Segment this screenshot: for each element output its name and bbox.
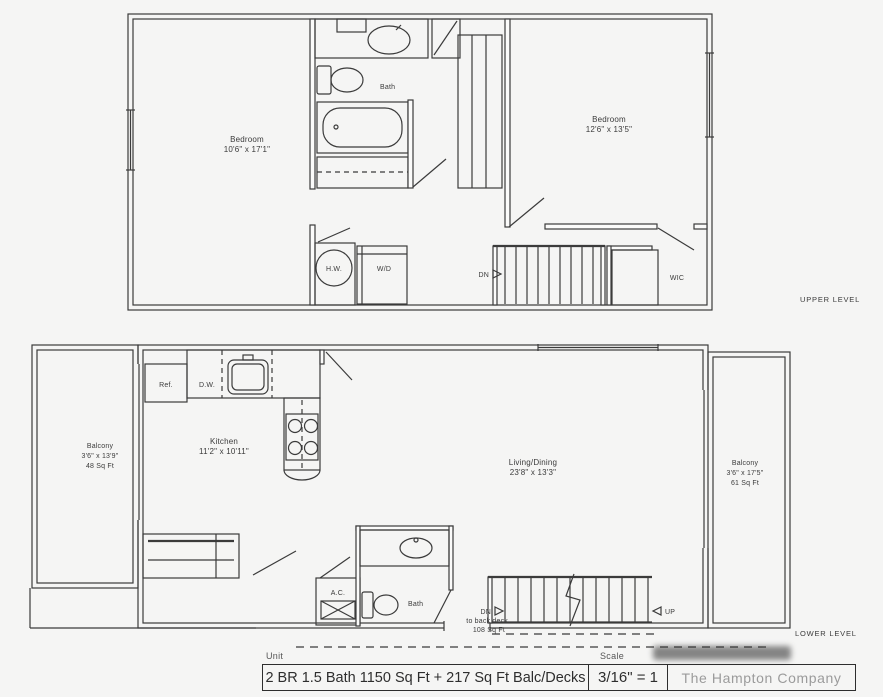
wd-label: W/D bbox=[377, 266, 391, 273]
bath-label: Bath bbox=[380, 84, 395, 91]
kitchen: Ref. D.W. Kitchen 11'2" x 10'11" bbox=[145, 350, 352, 480]
toilet-icon bbox=[331, 68, 363, 92]
living-name: Living/Dining bbox=[509, 458, 557, 467]
balcony-left-name: Balcony bbox=[87, 443, 114, 450]
bath-door-swing bbox=[434, 590, 451, 623]
balcony-right: Balcony 3'6" x 17'5" 61 Sq Ft bbox=[702, 352, 790, 628]
lower-stairs: DN to back deck 108 Sq Ft UP bbox=[296, 574, 772, 647]
bath-vanity-counter bbox=[315, 19, 428, 58]
kitchen-dims: 11'2" x 10'11" bbox=[199, 447, 249, 456]
balcony-right-area: 61 Sq Ft bbox=[731, 480, 759, 487]
dw-label: D.W. bbox=[199, 382, 215, 389]
toilet-tank-icon bbox=[317, 66, 331, 94]
kitchen-door-swing bbox=[326, 352, 352, 380]
lower-bath: Bath bbox=[356, 526, 453, 626]
floor-plan-drawing: Bedroom 10'6" x 17'1" Bath bbox=[0, 0, 883, 697]
dn-note-1: to back deck bbox=[466, 618, 508, 625]
unit-summary: 2 BR 1.5 Bath 1150 Sq Ft + 217 Sq Ft Bal… bbox=[262, 664, 589, 691]
entry-door-swing bbox=[320, 557, 350, 578]
watermark-smudge bbox=[653, 646, 791, 660]
stair-break-line bbox=[566, 574, 580, 626]
wic-label: WIC bbox=[670, 275, 684, 282]
bedroom-2: Bedroom 12'6" x 13'5" bbox=[505, 19, 707, 229]
bath-vanity bbox=[360, 530, 449, 566]
counter-end-cap bbox=[284, 470, 320, 480]
up-label: UP bbox=[665, 609, 675, 616]
scale-value: 3/16" = 1 bbox=[589, 664, 668, 691]
upper-level-caption: UPPER LEVEL bbox=[800, 295, 860, 304]
tub-icon bbox=[317, 102, 408, 153]
bedroom-1-dims: 10'6" x 17'1" bbox=[224, 145, 270, 154]
toilet-tank-icon bbox=[362, 592, 373, 618]
lower-level-caption: LOWER LEVEL bbox=[795, 629, 857, 638]
upper-window-left bbox=[126, 110, 135, 170]
company-name: The Hampton Company bbox=[668, 664, 856, 691]
balcony-left-area: 48 Sq Ft bbox=[86, 463, 114, 470]
ac-closet: A.C. bbox=[316, 578, 360, 625]
hw-label: H.W. bbox=[326, 266, 342, 273]
unit-label: Unit bbox=[266, 651, 283, 661]
wic-door-swing bbox=[658, 228, 694, 250]
living-dims: 23'8" x 13'3" bbox=[510, 468, 556, 477]
living-dining: Living/Dining 23'8" x 13'3" bbox=[509, 458, 557, 477]
bedroom-2-name: Bedroom bbox=[592, 115, 626, 124]
balcony-left-dims: 3'6" x 13'9" bbox=[82, 453, 119, 460]
entry-closets bbox=[143, 534, 350, 578]
kitchen-name: Kitchen bbox=[210, 437, 238, 446]
dn-arrow-icon bbox=[495, 607, 503, 615]
bath-door-swing bbox=[413, 159, 446, 187]
upper-bath: Bath bbox=[315, 19, 460, 188]
bedroom-2-dims: 12'6" x 13'5" bbox=[586, 125, 632, 134]
bedroom-1-name: Bedroom bbox=[230, 135, 264, 144]
balcony-right-name: Balcony bbox=[732, 460, 759, 467]
upper-dn-label: DN bbox=[478, 272, 489, 279]
bedroom-2-door-swing bbox=[509, 198, 544, 227]
title-bar: 2 BR 1.5 Bath 1150 Sq Ft + 217 Sq Ft Bal… bbox=[262, 664, 856, 691]
bath-sink-icon bbox=[400, 538, 432, 558]
lower-level-plan: Balcony 3'6" x 13'9" 48 Sq Ft Balcony 3'… bbox=[30, 344, 857, 647]
hw-closet: H.W. bbox=[315, 228, 355, 305]
upper-level-plan: Bedroom 10'6" x 17'1" Bath bbox=[126, 14, 860, 310]
lower-dn-label: DN bbox=[480, 609, 491, 616]
dn-note-2: 108 Sq Ft bbox=[473, 627, 505, 634]
up-arrow-icon bbox=[653, 607, 661, 615]
bath-label: Bath bbox=[408, 601, 423, 608]
upper-window-right bbox=[705, 53, 714, 137]
ref-label: Ref. bbox=[159, 382, 173, 389]
bedroom-1: Bedroom 10'6" x 17'1" bbox=[224, 19, 315, 305]
balcony-right-dims: 3'6" x 17'5" bbox=[727, 470, 764, 477]
stair-chase bbox=[458, 35, 502, 188]
wic: WIC bbox=[607, 228, 694, 305]
wd-closet: W/D bbox=[357, 246, 407, 304]
upper-stairs: DN bbox=[478, 246, 605, 305]
bath-sink-icon bbox=[368, 26, 410, 54]
toilet-icon bbox=[374, 595, 398, 615]
ac-label: A.C. bbox=[331, 590, 345, 597]
scale-label: Scale bbox=[600, 651, 624, 661]
closet-door-swing bbox=[253, 551, 296, 575]
